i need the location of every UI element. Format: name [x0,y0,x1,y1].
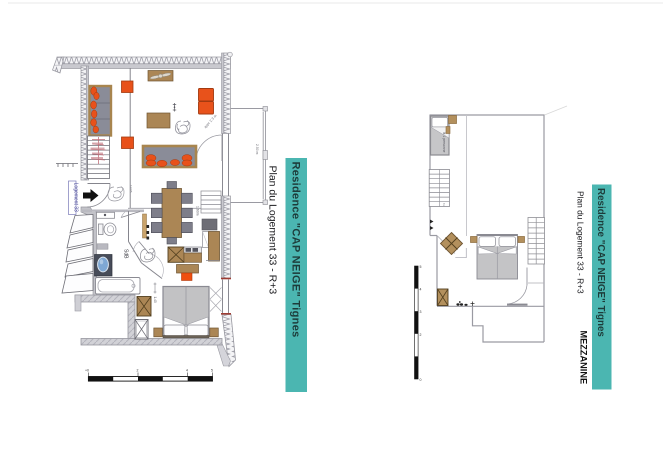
svg-text:2: 2 [443,203,445,207]
svg-text:Residence "CAP NEIGE" Tignes: Residence "CAP NEIGE" Tignes [595,188,606,337]
svg-text:4: 4 [186,369,188,373]
svg-text:5: 5 [420,265,422,269]
svg-text:0: 0 [420,378,422,382]
svg-text:1.40: 1.40 [153,297,157,303]
svg-text:4: 4 [420,288,422,292]
svg-text:+0: +0 [85,369,89,373]
svg-text:appr 2.3 m: appr 2.3 m [203,114,217,129]
svg-text:1.60m: 1.60m [196,206,200,216]
svg-text:2: 2 [420,333,422,337]
svg-text:Logement 33: Logement 33 [73,183,79,212]
svg-text:2.50 m: 2.50 m [255,144,259,155]
svg-text:MEZZANINE: MEZZANINE [579,331,589,385]
svg-text:Plan du Logement 33 - R+3: Plan du Logement 33 - R+3 [576,191,586,294]
svg-text:2: 2 [137,369,139,373]
svg-text:3: 3 [420,310,422,314]
svg-text:Residence "CAP NEIGE" Tignes: Residence "CAP NEIGE" Tignes [290,162,302,338]
svg-text:lit 1 personne: lit 1 personne [442,132,446,152]
svg-text:Plan du Logement 33 - R+3: Plan du Logement 33 - R+3 [267,166,279,295]
svg-text:SdB: SdB [123,249,129,259]
svg-text:1m05: 1m05 [129,185,133,193]
svg-text:5: 5 [211,369,213,373]
